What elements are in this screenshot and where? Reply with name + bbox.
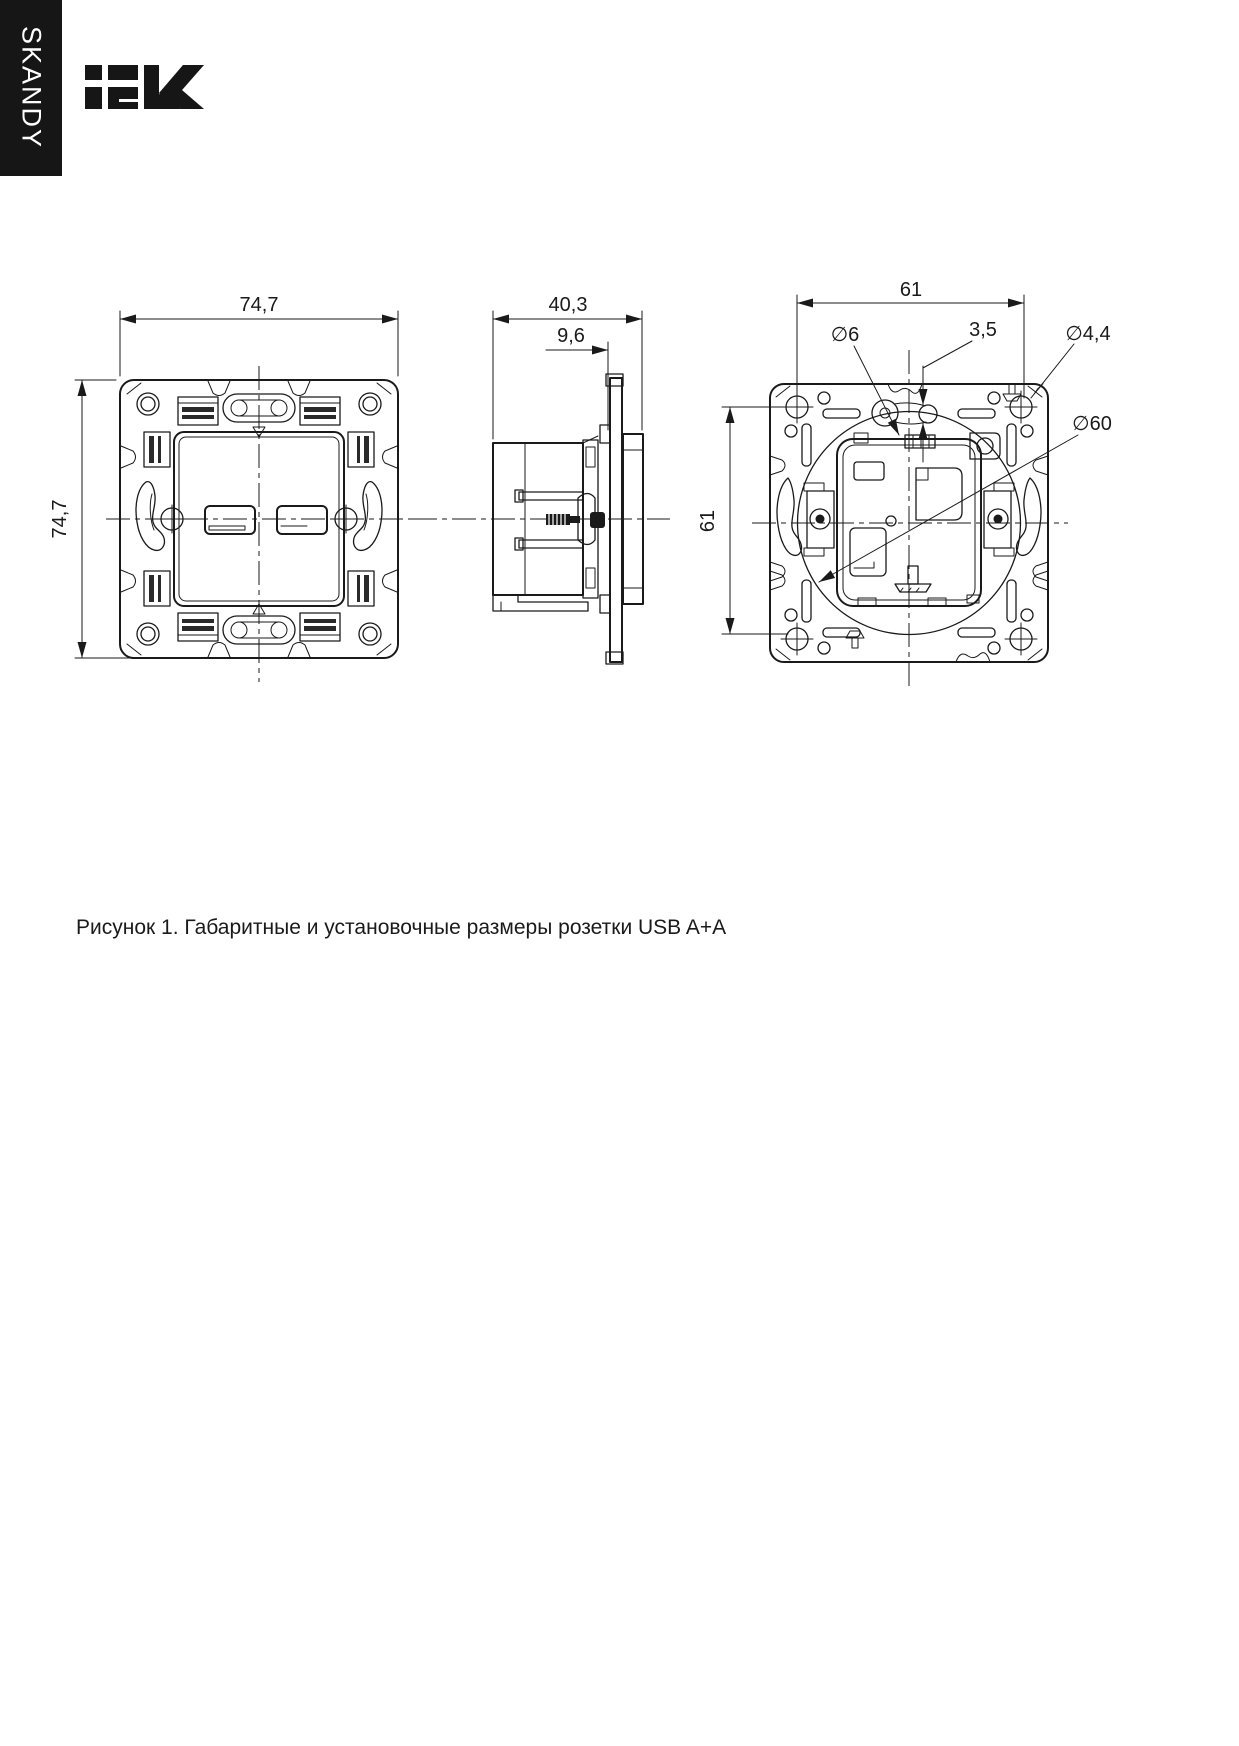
corner-hole: [137, 393, 159, 415]
side-strap-edge: [610, 378, 622, 662]
iek-logo: IEK: [80, 57, 210, 117]
front-screw: [158, 505, 186, 533]
back-width-label: 61: [900, 279, 922, 301]
usb-port-left-tongue: [209, 526, 245, 530]
side-depth-label: 40,3: [549, 294, 588, 316]
back-housing-parts: [850, 433, 1000, 606]
back-claw-assembly: [777, 478, 834, 556]
brand-sidebar: SKANDY: [0, 0, 62, 176]
side-view: 40,3 9,6: [413, 294, 670, 664]
front-claw-cutout: [136, 482, 164, 551]
bridge-thickness-dimension: 3,5: [919, 319, 997, 462]
side-depth-dimension: 40,3: [493, 294, 642, 439]
side-offset-label: 9,6: [557, 325, 585, 347]
side-claw-screw: [546, 494, 605, 545]
front-strap-details: [121, 381, 230, 468]
front-view: 74,7 74,7: [49, 294, 417, 682]
dimension-drawing: 74,7 74,7: [0, 250, 1239, 740]
side-offset-dimension: 9,6: [546, 325, 608, 430]
brand-vertical-label: SKANDY: [16, 26, 47, 149]
back-height-label: 61: [697, 510, 719, 532]
screw-hole-label: ∅4,4: [1065, 323, 1110, 345]
document-page: SKANDY IEK: [0, 0, 1239, 1746]
front-width-label: 74,7: [240, 294, 279, 316]
iek-logo-graphic: [80, 57, 210, 117]
support-circle-label: ∅60: [1072, 413, 1112, 435]
side-foot: [493, 595, 588, 611]
bridge-thickness-label: 3,5: [969, 319, 997, 341]
back-height-dimension: 61: [697, 407, 788, 634]
back-view: 61 61 ∅6 3,5: [697, 279, 1112, 686]
usb-port-right: [277, 506, 327, 534]
front-width-dimension: 74,7: [120, 294, 398, 376]
front-height-label: 74,7: [49, 500, 71, 539]
slot-diameter-label: ∅6: [831, 324, 860, 346]
figure-caption: Рисунок 1. Габаритные и установочные раз…: [76, 916, 726, 940]
